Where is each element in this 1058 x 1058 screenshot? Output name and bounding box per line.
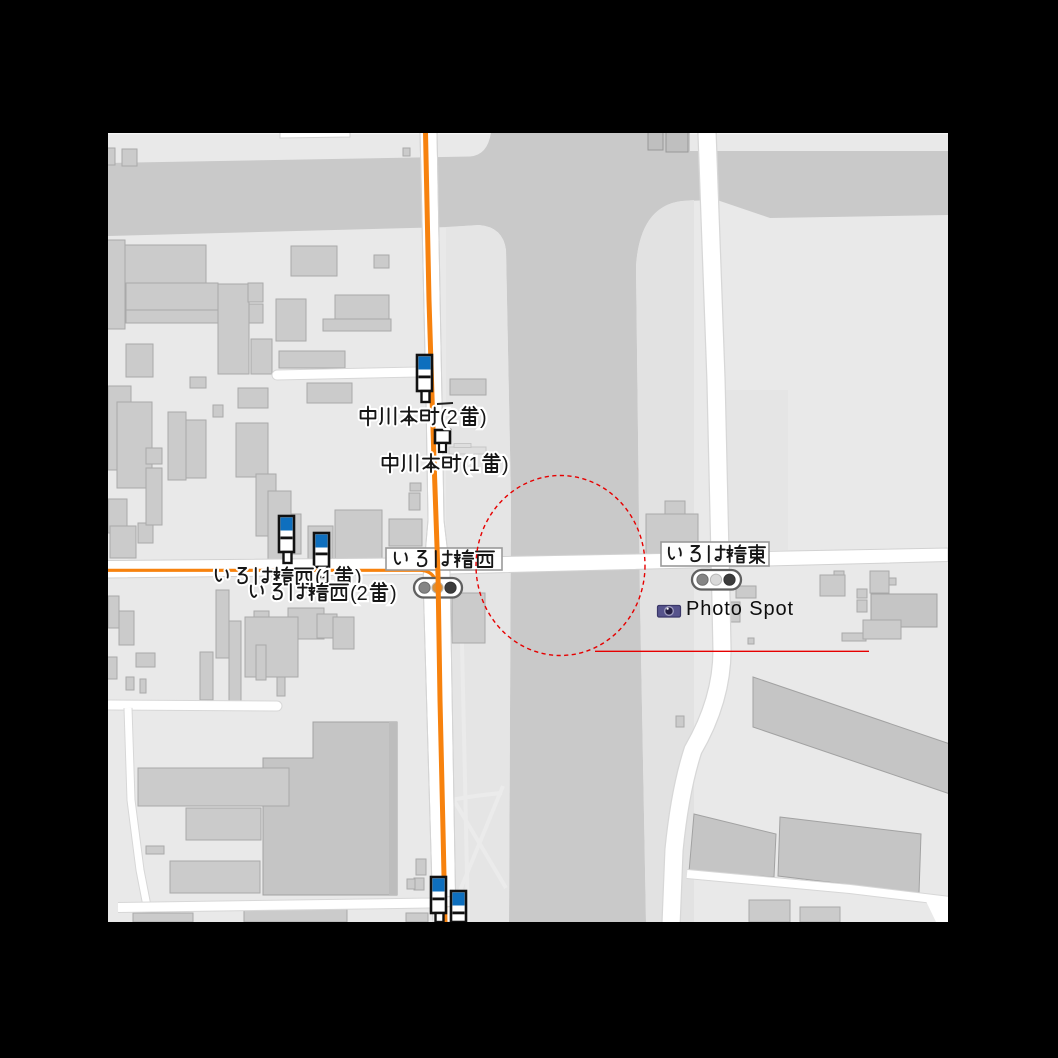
svg-text:(2: (2 [440,407,458,429]
svg-text:): ) [480,407,487,429]
svg-text:(1: (1 [462,454,480,476]
svg-text:(2: (2 [350,583,368,605]
svg-text:): ) [502,454,509,476]
svg-text:): ) [390,583,397,605]
svg-text:Photo Spot: Photo Spot [686,598,794,620]
